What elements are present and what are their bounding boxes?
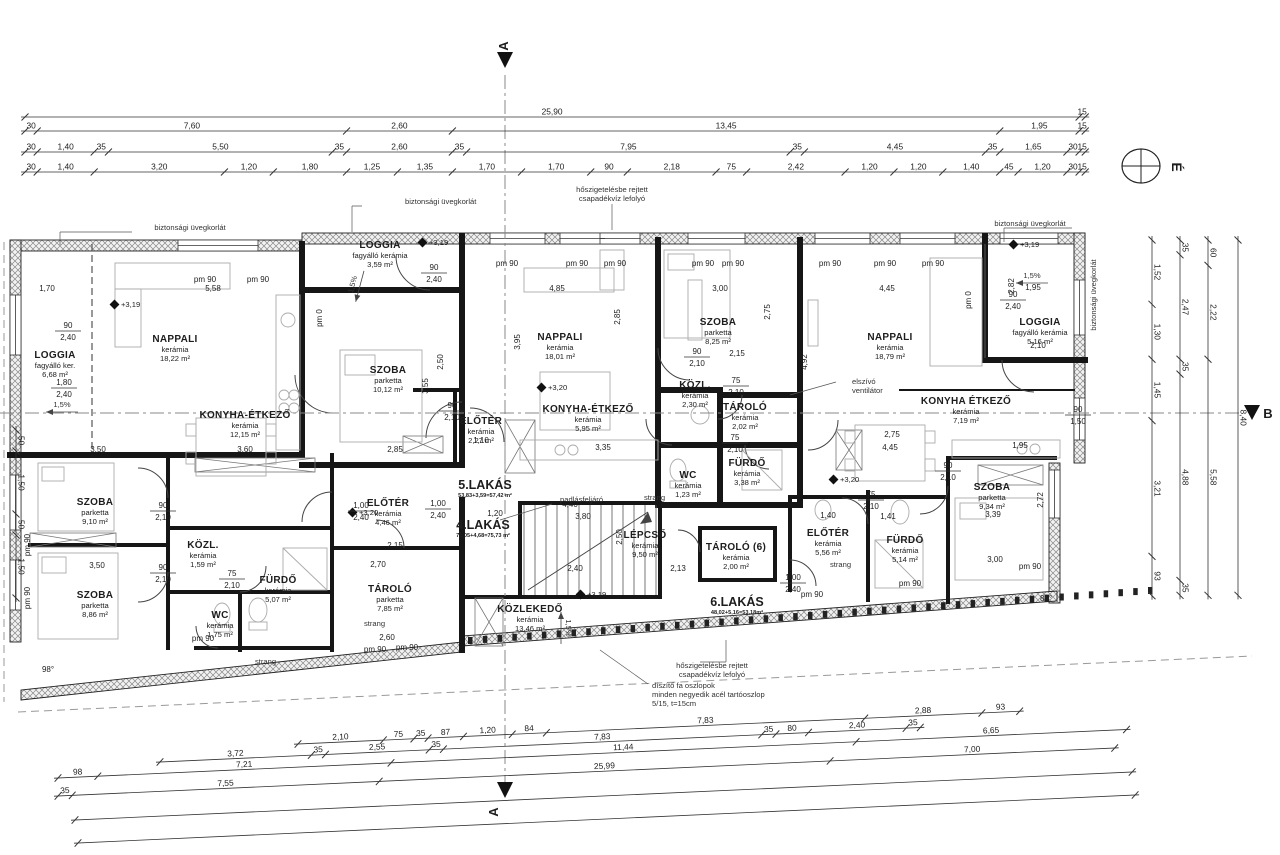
door-width-dl1: 90 (64, 321, 73, 330)
colonnade-post (838, 610, 843, 617)
colonnade-post (808, 612, 813, 619)
room-name-szoba3: SZOBA (77, 590, 114, 601)
colonnade-post (616, 626, 621, 633)
annotation-csapadek2-7: csapadékvíz lefolyó (679, 670, 745, 679)
dim-d350b: 3,50 (89, 561, 105, 570)
door-width-dl16: 90 (1074, 405, 1083, 414)
dim-d250s: 2,50 (615, 529, 624, 545)
room-material-lepcso: kerámia (631, 541, 659, 550)
annotation-strang-1: strang (364, 619, 385, 628)
room-name-wc1: WC (211, 610, 228, 621)
door-height-dl2: 2,40 (56, 390, 72, 399)
dim-d140: 1,40 (820, 511, 836, 520)
dim-chain-r2-seg-2: 35 (1181, 362, 1191, 372)
colonnade-post (483, 636, 488, 643)
dim-d250r: 2,50 (436, 354, 445, 370)
dim-chain-t4-seg-16: 45 (1004, 162, 1014, 172)
dim-chain-b2-seg-6: 80 (787, 723, 797, 733)
dim-d350a: 3,50 (90, 445, 106, 454)
level-320-2: +3,20 (840, 475, 859, 484)
colonnade-post (631, 625, 636, 632)
colonnade-post (985, 599, 990, 606)
dim-chain-r1: 1,521,301,453,2193 (1149, 236, 1163, 600)
room-material-kozl1: kerámia (189, 551, 217, 560)
annotation-uvegkorlat-1: biztonsági üvegkorlát (405, 197, 477, 206)
annotation-elszivo2-9: ventilátor (852, 386, 883, 395)
dim-chain-r3: 602,225,58 (1205, 236, 1219, 599)
door-height-dl5: 2,10 (155, 575, 171, 584)
window-sill-label-1: pm 90 (247, 275, 270, 284)
section-letter-bottom: A (486, 807, 501, 817)
annotation-oszlop2-12: minden negyedik acél tartóoszlop (652, 690, 765, 699)
room-name-konyha3: KONYHA ÉTKEZŐ (921, 394, 1011, 407)
colonnade-post (1015, 597, 1020, 604)
dim-chain-b3-seg-1: 7,21 (236, 759, 253, 770)
room-material-eloter1: kerámia (374, 509, 402, 518)
door-width-dl11: 75 (732, 376, 741, 385)
room-name-lepcso: LÉPCSŐ (624, 528, 667, 541)
window-sill-label-3: pm 90 (566, 259, 589, 268)
dim-chain-r2-seg-1: 2,47 (1181, 299, 1191, 316)
apartment-area-calc-a6: 48,02+5,16=53,18m² (711, 609, 763, 616)
dim-chain-t4-seg-2: 3,20 (151, 162, 168, 172)
window-sill-label-10: pm 90 (23, 533, 32, 556)
room-material-eloter6: kerámia (814, 539, 842, 548)
dim-chain-t2-seg-5: 15 (1078, 121, 1088, 131)
dim-chain-b1-seg-2: 35 (416, 728, 426, 738)
dim-chain-t4-seg-6: 1,35 (417, 162, 434, 172)
room-name-kozl2: KÖZL. (679, 378, 711, 391)
door-height-dl11: 2,10 (728, 388, 744, 397)
exterior-walls (10, 233, 1085, 700)
room-area-tarolo1: 7,85 m² (377, 604, 403, 613)
apartment-label-a5: 5.LAKÁS (458, 477, 511, 492)
dim-d339: 3,39 (985, 510, 1001, 519)
level-320-1-symbol (537, 383, 547, 393)
dim-d213: 2,13 (670, 564, 686, 573)
room-area-szoba3: 8,86 m² (82, 610, 108, 619)
dim-chain-t2-seg-1: 7,60 (184, 121, 201, 131)
colonnade-post (586, 628, 591, 635)
colonnade-post (705, 620, 710, 627)
dim-chain-t4-seg-15: 1,40 (963, 162, 980, 172)
colonnade-post (601, 627, 606, 634)
level-319-0-symbol (110, 300, 120, 310)
dim-chain-b1-seg-6: 7,83 (697, 715, 714, 726)
room-area-kozl2: 2,30 m² (682, 400, 708, 409)
room-material-szoba6: parketta (978, 493, 1006, 502)
colonnade-post (1030, 596, 1035, 603)
dim-d170: 1,70 (39, 284, 55, 293)
room-material-loggia2: fagyálló kerámia (352, 251, 408, 260)
door-width-dl14: 75 (867, 490, 876, 499)
room-area-nappali2: 18,01 m² (545, 352, 575, 361)
door-width-dl7: 1,00 (430, 499, 446, 508)
dim-chain-t4-seg-3: 1,20 (241, 162, 258, 172)
room-name-nappali3: NAPPALI (867, 332, 912, 343)
room-name-szoba4: SZOBA (700, 317, 737, 328)
dim-chain-r3-seg-2: 5,58 (1209, 469, 1219, 486)
dim-d395r: 3,95 (513, 334, 522, 350)
window-sill-label-16: pm 90 (899, 579, 922, 588)
door-height-dl1: 2,40 (60, 333, 76, 342)
room-material-szoba3: parketta (81, 601, 109, 610)
room-name-tarolo2: TÁROLÓ (723, 400, 767, 413)
level-319-0: +3,19 (121, 300, 140, 309)
dim-chain-t3-seg-6: 35 (455, 142, 465, 152)
dim-d485: 4,85 (549, 284, 565, 293)
dim-chain-t2-seg-2: 2,60 (391, 121, 408, 131)
dim-d120: 1,20 (487, 509, 503, 518)
dim-chain-b1-seg-3: 87 (441, 727, 451, 737)
room-material-wc1: kerámia (206, 621, 234, 630)
dim-chain-t3-seg-2: 35 (97, 142, 107, 152)
room-area-furdo2: 3,38 m² (734, 478, 760, 487)
dim-d380: 3,80 (575, 512, 591, 521)
room-name-szoba6: SZOBA (974, 482, 1011, 493)
room-material-furdo1: kerámia (264, 586, 292, 595)
door-width-dl19: 90 (1009, 290, 1018, 299)
dim-chain-b3-seg-2: 11,44 (613, 741, 634, 752)
window-sill-label-5: pm 90 (692, 259, 715, 268)
window-sill-label-7: pm 90 (819, 259, 842, 268)
room-area-nappali3: 18,79 m² (875, 352, 905, 361)
dim-chain-t4-seg-19: 15 (1078, 162, 1088, 172)
colonnade-post (941, 602, 946, 609)
door-width-dl15: 90 (944, 461, 953, 470)
section-letter-top: A (496, 41, 511, 51)
door-width-dl8: 90 (448, 401, 457, 410)
door-width-dl2: 1,80 (56, 378, 72, 387)
dim-chain-l1-seg-1: 1,50 (17, 474, 27, 491)
room-area-tarolo6: 2,00 m² (723, 562, 749, 571)
colonnade-post (956, 601, 961, 608)
section-letter-right: B (1263, 406, 1272, 421)
dim-chain-b4: 357,5525,997,00 (54, 737, 1119, 799)
room-area-szoba2: 9,10 m² (82, 517, 108, 526)
dim-chain-l1-seg-2: 50 (17, 520, 27, 530)
dim-chain-r3-seg-0: 60 (1209, 248, 1219, 258)
dim-d270: 2,70 (370, 560, 386, 569)
colonnade-post (882, 607, 887, 614)
room-material-tarolo2: kerámia (731, 413, 759, 422)
dim-chain-t2-seg-3: 13,45 (716, 121, 737, 131)
room-material-eloter3: kerámia (467, 427, 495, 436)
dim-chain-r1-seg-1: 1,30 (1153, 324, 1163, 341)
dim-chain-t3-seg-5: 2,60 (391, 142, 408, 152)
room-material-szoba2: parketta (81, 508, 109, 517)
dim-chain-b1-seg-1: 75 (393, 729, 403, 739)
window-sill-label-8: pm 90 (874, 259, 897, 268)
window-sill-label-14: pm 90 (396, 643, 419, 652)
room-name-eloter6: ELŐTÉR (807, 526, 850, 539)
room-material-nappali1: kerámia (161, 345, 189, 354)
dim-chain-r3-seg-1: 2,22 (1209, 304, 1219, 321)
room-name-nappali2: NAPPALI (537, 332, 582, 343)
room-name-wc2: WC (679, 470, 696, 481)
door-width-dl17: 1,00 (785, 573, 801, 582)
dim-chain-r2-seg-4: 35 (1181, 583, 1191, 593)
dim-chain-l1-seg-3: 1,50 (17, 558, 27, 575)
dim-d272r: 2,72 (1036, 492, 1045, 508)
dim-chain-t2-seg-0: 30 (26, 121, 36, 131)
dim-chain-b1-seg-0: 2,10 (332, 731, 349, 742)
door-width-dl10: 90 (693, 347, 702, 356)
annotation-csapadek1-4: hőszigetelésbe rejtett (576, 185, 649, 194)
room-name-nappali1: NAPPALI (152, 334, 197, 345)
dim-chain-t4-seg-0: 30 (26, 162, 36, 172)
dim-chain-b6 (74, 791, 1139, 846)
colonnade-post (512, 634, 517, 641)
room-area-eloter6: 5,56 m² (815, 548, 841, 557)
annotation-strang-3: strang (830, 560, 851, 569)
colonnade-post (1089, 591, 1094, 598)
door-width-dl3: 90 (159, 501, 168, 510)
dim-chain-b1-seg-4: 1,20 (479, 725, 496, 736)
dim-chain-t4-seg-9: 90 (604, 162, 614, 172)
apartment-area-calc-a5: 53,83+3,59=57,42 m² (458, 492, 512, 499)
dim-chain-b4-seg-1: 7,55 (217, 778, 234, 789)
room-area-furdo1: 5,07 m² (265, 595, 291, 604)
windows (10, 233, 1085, 610)
dim-d215a: 2,15 (729, 349, 745, 358)
door-height-dl14: 2,10 (863, 502, 879, 511)
slope-arrowhead-0 (46, 409, 53, 415)
colonnade-post (823, 611, 828, 618)
room-area-konyha3: 7,19 m² (953, 416, 979, 425)
door-height-dl12: 2,10 (727, 445, 743, 454)
annotation-csapadek1-6: hőszigetelésbe rejtett (676, 661, 749, 670)
door-height-dl15: 2,10 (940, 473, 956, 482)
dim-chain-t3-seg-4: 35 (335, 142, 345, 152)
colonnade-post (1133, 588, 1138, 595)
dim-chain-b4-seg-2: 25,99 (594, 760, 616, 771)
room-area-wc2: 1,23 m² (675, 490, 701, 499)
dim-chain-t4: 301,403,201,201,801,251,351,701,70902,18… (21, 162, 1089, 176)
room-material-tarolo6: kerámia (722, 553, 750, 562)
dim-chain-b4-seg-3: 7,00 (964, 744, 981, 755)
window-sill-label-2: pm 90 (496, 259, 519, 268)
angle-label-a82: 82° (1040, 594, 1052, 603)
room-material-nappali2: kerámia (546, 343, 574, 352)
colonnade-post (719, 619, 724, 626)
dim-chain-t3-seg-1: 1,40 (58, 142, 75, 152)
door-height-dl17: 2,40 (785, 585, 801, 594)
colonnade-post (778, 614, 783, 621)
level-319-1: +3,19 (429, 238, 448, 247)
room-name-kozlekedo: KÖZLEKEDŐ (497, 602, 562, 615)
dim-d360: 3,60 (237, 445, 253, 454)
dim-d260: 2,60 (379, 633, 395, 642)
room-material-konyha3: kerámia (952, 407, 980, 416)
door-height-dl6: 2,40 (353, 513, 369, 522)
room-name-tarolo6: TÁROLÓ (6) (706, 540, 766, 553)
room-name-eloter3: ELŐTÉR (460, 414, 503, 427)
room-name-tarolo1: TÁROLÓ (368, 582, 412, 595)
room-area-furdo6: 5,14 m² (892, 555, 918, 564)
dim-chain-b1-seg-7: 2,88 (915, 705, 932, 716)
dim-d355r: 3,55 (421, 378, 430, 394)
dim-chain-t4-seg-4: 1,80 (302, 162, 319, 172)
room-material-tarolo1: parketta (376, 595, 404, 604)
room-area-loggia2: 3,59 m² (367, 260, 393, 269)
dim-d445a: 4,45 (879, 284, 895, 293)
dim-d300a: 3,00 (712, 284, 728, 293)
apartment-label-a6: 6.LAKÁS (710, 594, 763, 609)
dim-d275r: 2,75 (763, 304, 772, 320)
dim-chain-r1-seg-2: 1,45 (1153, 382, 1163, 399)
door-width-dl5: 90 (159, 563, 168, 572)
dim-d440: 4,40 (562, 500, 578, 509)
window-sill-label-13: pm 90 (364, 645, 387, 654)
colonnade-post (734, 617, 739, 624)
section-marker-a-top: A (496, 41, 513, 68)
colonnade-post (675, 622, 680, 629)
dim-chain-r4-seg-0: 8,40 (1239, 410, 1249, 427)
window-zero-label-1: pm 0 (964, 291, 973, 309)
room-name-konyha2: KONYHA-ÉTKEZŐ (542, 402, 633, 415)
slope-arrowhead-2 (1016, 280, 1023, 286)
level-319-3: +3,19 (1020, 240, 1039, 249)
dim-d195a: 1,95 (1012, 441, 1028, 450)
dim-d285r: 2,85 (613, 309, 622, 325)
room-material-loggia1: fagyálló ker. (35, 361, 76, 370)
dim-d110: 1,10 (473, 436, 489, 445)
window-sill-label-4: pm 90 (604, 259, 627, 268)
dim-chain-b2: 3,72352,55357,8335802,4035 (156, 717, 925, 766)
door-width-dl4: 75 (228, 569, 237, 578)
annotation-csapadek2-5: csapadékvíz lefolyó (579, 194, 645, 203)
room-material-furdo6: kerámia (891, 546, 919, 555)
colonnade-post (1104, 590, 1109, 597)
dim-d210r: 2,10 (1030, 341, 1046, 350)
room-area-kozlekedo: 13,46 m² (515, 624, 545, 633)
dim-d195b: 1,95 (1025, 283, 1041, 292)
room-area-lepcso: 9,50 m² (632, 550, 658, 559)
door-height-dl19: 2,40 (1005, 302, 1021, 311)
room-material-konyha1: kerámia (231, 421, 259, 430)
dim-chain-t3-seg-9: 4,45 (887, 142, 904, 152)
interior-walls (10, 236, 1085, 650)
dim-chain-t4-seg-10: 2,18 (664, 162, 681, 172)
room-name-furdo2: FÜRDŐ (728, 456, 765, 469)
dim-chain-b2-seg-4: 7,83 (594, 731, 611, 742)
room-material-szoba1: parketta (374, 376, 402, 385)
dim-chain-b2-seg-7: 2,40 (849, 719, 866, 730)
slope-arrowhead-1 (353, 294, 361, 302)
dim-chain-t4-seg-13: 1,20 (861, 162, 878, 172)
annotation-uvegkorlat-2: biztonsági üvegkorlát (994, 219, 1066, 228)
dim-chain-t1-seg-0: 25,90 (542, 107, 563, 117)
angle-label-a98: 98° (42, 665, 54, 674)
room-area-kozl1: 1,59 m² (190, 560, 216, 569)
dim-chain-t4-seg-7: 1,70 (479, 162, 496, 172)
colonnade-post (926, 603, 931, 610)
dim-d215b: 2,15 (387, 541, 403, 550)
dim-chain-t4-seg-5: 1,25 (364, 162, 381, 172)
dim-chain-t2: 307,602,6013,451,9515 (21, 121, 1089, 135)
colonnade-post (468, 637, 473, 644)
annotation-strang-0: strang (255, 657, 276, 666)
window-sill-label-15: pm 90 (801, 590, 824, 599)
colonnade-post (1000, 598, 1005, 605)
room-material-furdo2: kerámia (733, 469, 761, 478)
window-sill-label-6: pm 90 (722, 259, 745, 268)
room-name-loggia3: LOGGIA (1019, 317, 1060, 328)
annotation-uvegkorlat-3: biztonsági üvegkorlát (1089, 258, 1098, 330)
colonnade-post (1074, 592, 1079, 599)
window-zero-label-0: pm 0 (315, 309, 324, 327)
dim-chain-t4-seg-1: 1,40 (58, 162, 75, 172)
room-name-szoba2: SZOBA (77, 497, 114, 508)
door-height-dl10: 2,10 (689, 359, 705, 368)
annotation-strang-2: strang (644, 493, 665, 502)
dim-chain-r4: 8,40 (1235, 236, 1249, 599)
dim-d285a: 2,85 (387, 445, 403, 454)
colonnade-post (645, 624, 650, 631)
dim-chain-t3-seg-0: 30 (26, 142, 36, 152)
room-area-tarolo2: 2,02 m² (732, 422, 758, 431)
dim-chain-t4-seg-14: 1,20 (910, 162, 927, 172)
floor-plan-canvas: A A B É LOGGIAfagyálló ker.6,68 m²NAPPAL… (0, 0, 1280, 855)
slope-label-2: 1,5% (1023, 271, 1041, 280)
room-name-loggia2: LOGGIA (359, 240, 400, 251)
dim-chain-t3: 301,40355,50352,60357,95354,45351,653015 (21, 142, 1089, 156)
colonnade-post (660, 623, 665, 630)
dim-chain-t3-seg-7: 7,95 (620, 142, 637, 152)
dim-d492r: 4,92 (800, 354, 809, 370)
dim-d445b: 4,45 (882, 443, 898, 452)
annotation-oszlop3-13: 5/15, t=15cm (652, 699, 696, 708)
dim-chain-t4-seg-17: 1,20 (1034, 162, 1051, 172)
window-sill-label-0: pm 90 (194, 275, 217, 284)
north-label: É (1169, 162, 1185, 171)
door-height-dl3: 2,10 (155, 513, 171, 522)
floor-plan-page: A A B É LOGGIAfagyálló ker.6,68 m²NAPPAL… (0, 0, 1280, 855)
room-material-konyha2: kerámia (574, 415, 602, 424)
room-name-furdo1: FÜRDŐ (259, 573, 296, 586)
room-material-kozlekedo: kerámia (516, 615, 544, 624)
window-sill-label-12: pm 90 (192, 634, 215, 643)
door-width-dl6: 1,00 (353, 501, 369, 510)
dim-chain-r2-seg-3: 4,88 (1181, 469, 1191, 486)
section-marker-a-bottom: A (486, 782, 513, 817)
door-height-dl8: 2,10 (444, 413, 460, 422)
annotation-elszivo1-8: elszívó (852, 377, 876, 386)
room-material-szoba4: parketta (704, 328, 732, 337)
dim-chain-r1-seg-4: 93 (1153, 571, 1163, 581)
door-width-dl12: 75 (731, 433, 740, 442)
annotation-uvegkorlat-0: biztonsági üvegkorlát (154, 223, 226, 232)
dim-d558: 5,58 (205, 284, 221, 293)
room-area-szoba4: 8,25 m² (705, 337, 731, 346)
room-area-szoba1: 10,12 m² (373, 385, 403, 394)
colonnade-post (749, 616, 754, 623)
slope-label-3: 1,5% (564, 619, 573, 637)
colonnade-post (793, 613, 798, 620)
dim-chain-b2-seg-8: 35 (908, 717, 918, 727)
window-sill-label-11: pm 90 (23, 586, 32, 609)
dim-chain-b3-seg-3: 6,65 (983, 725, 1000, 736)
dim-chain-b2-seg-1: 35 (313, 744, 323, 754)
apartment-label-a4: 4.LAKÁS (456, 517, 509, 532)
dim-d275a: 2,75 (884, 430, 900, 439)
dim-chain-t3-seg-13: 15 (1078, 142, 1088, 152)
colonnade-post (897, 605, 902, 612)
dim-chain-t2-seg-4: 1,95 (1031, 121, 1048, 131)
dim-chain-b2-seg-0: 3,72 (227, 748, 244, 759)
dim-chain-t4-seg-12: 2,42 (788, 162, 805, 172)
